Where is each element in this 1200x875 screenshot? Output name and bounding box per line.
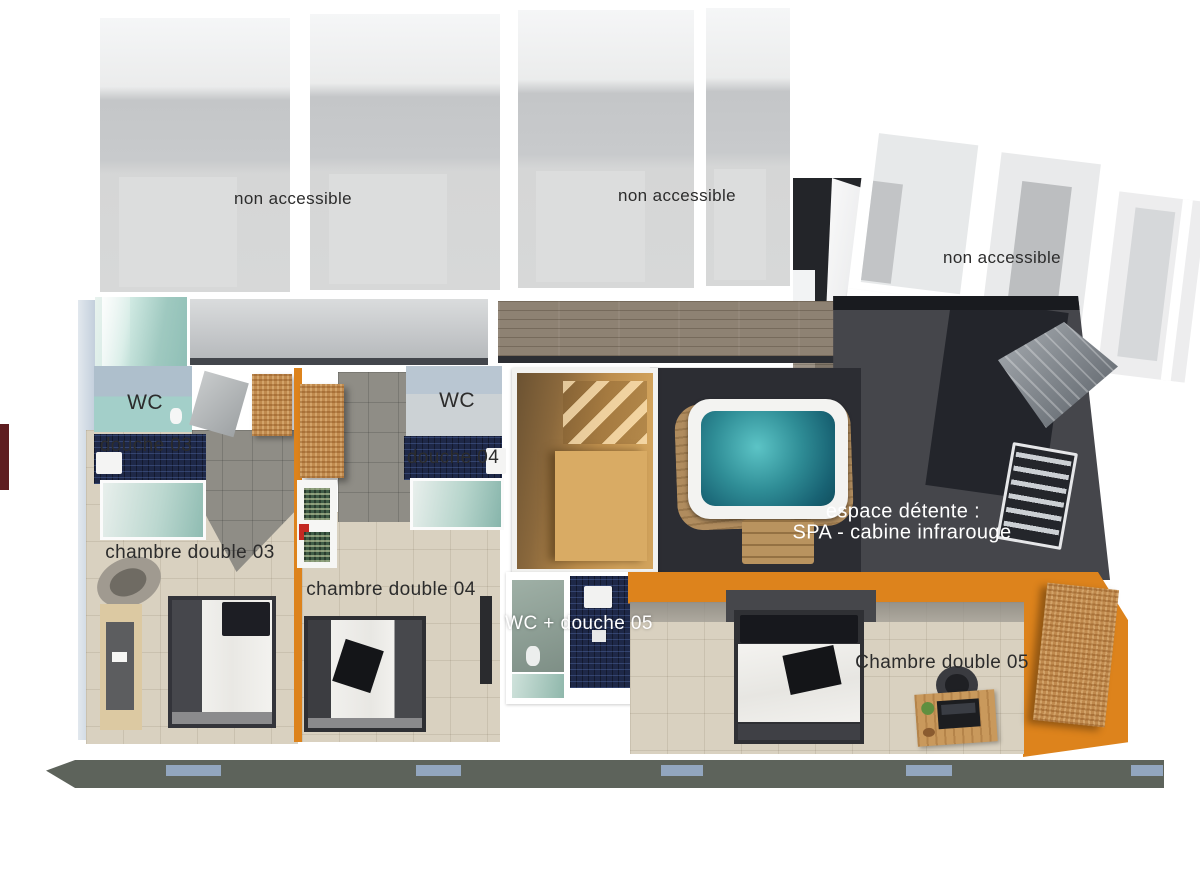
attic-room-4	[706, 8, 790, 286]
chambre-04-kitchenette	[297, 480, 337, 568]
chambre-03-sideboard-top	[106, 622, 134, 710]
label-douche-03: douche 03	[100, 435, 192, 457]
chambre-05-desk	[914, 689, 997, 746]
chambre-03-armchair-seat	[106, 563, 152, 602]
label-chambre-04: chambre double 04	[306, 579, 475, 601]
window-1	[166, 765, 221, 776]
chambre-04-tv	[480, 596, 492, 684]
bed-04	[304, 616, 426, 732]
attic-room-1-floor	[119, 177, 237, 287]
bed-03	[168, 596, 276, 728]
window-4	[906, 765, 952, 776]
chambre-03-cabinet	[252, 374, 292, 436]
bed-03-pillows	[222, 602, 270, 636]
douche-05-fixture	[584, 586, 612, 608]
label-chambre-03: chambre double 03	[105, 542, 274, 564]
chambre-03-sideboard	[100, 604, 142, 730]
sauna-light-stripes	[563, 381, 647, 444]
label-wc-mid: WC	[439, 389, 475, 413]
glass-highlight	[102, 297, 130, 367]
label-wc-douche-05: WC + douche 05	[505, 613, 653, 635]
wc-05-toilet	[526, 646, 540, 666]
chambre-03-open-door	[189, 371, 249, 438]
wc-left-toilet	[170, 408, 182, 424]
glass-partition	[95, 297, 187, 367]
chambre-03-sideboard-paper	[112, 652, 127, 662]
desk-laptop	[937, 698, 981, 729]
corridor-gray	[190, 299, 488, 365]
jacuzzi-water	[701, 411, 835, 506]
bed-05-foot-band	[738, 724, 860, 740]
attic-room-3	[518, 10, 694, 288]
attic-room-2	[310, 14, 500, 290]
label-non-accessible-1: non accessible	[234, 189, 352, 209]
douche-03-tray	[100, 480, 206, 540]
label-non-accessible-2: non accessible	[618, 186, 736, 206]
corridor-wood	[498, 301, 834, 363]
desk-plant	[921, 702, 935, 716]
window-2	[416, 765, 461, 776]
chambre-04-wardrobe	[300, 384, 344, 478]
douche-05-tray	[512, 674, 564, 698]
attic-room-1	[100, 18, 290, 292]
sauna	[512, 368, 658, 574]
label-wc-left: WC	[127, 391, 163, 415]
window-3	[661, 765, 703, 776]
chambre-05-wardrobe	[1033, 583, 1119, 728]
sauna-bench	[555, 451, 647, 561]
kitchenette-mosaic-art-2	[304, 532, 330, 562]
desk-plate	[923, 728, 936, 738]
bottom-window-wall	[46, 760, 1164, 788]
floorplan-render: non accessible non accessible non access…	[0, 0, 1200, 875]
label-espace-detente-1: espace détente :	[826, 501, 980, 524]
spa-top-shadow	[828, 296, 1088, 310]
desk-laptop-screen	[941, 703, 976, 715]
bed-03-foot-band	[172, 712, 272, 724]
label-chambre-05: Chambre double 05	[855, 652, 1029, 674]
label-douche-04: douche 04	[407, 447, 499, 469]
label-non-accessible-3: non accessible	[943, 248, 1061, 268]
corridor-wood-edge	[498, 356, 834, 363]
kitchenette-mosaic-art-1	[304, 488, 330, 520]
douche-04-tray	[410, 478, 504, 530]
window-5	[1131, 765, 1163, 776]
left-edge-dark-sliver	[0, 424, 9, 490]
bed-05	[734, 610, 864, 744]
foosball-rows	[1002, 452, 1071, 541]
bed-04-foot-band	[308, 718, 422, 728]
jacuzzi-rim	[688, 399, 848, 519]
label-espace-detente-2: SPA - cabine infrarouge	[793, 522, 1012, 545]
corridor-gray-edge	[190, 358, 488, 365]
bed-05-pillows	[740, 615, 858, 643]
